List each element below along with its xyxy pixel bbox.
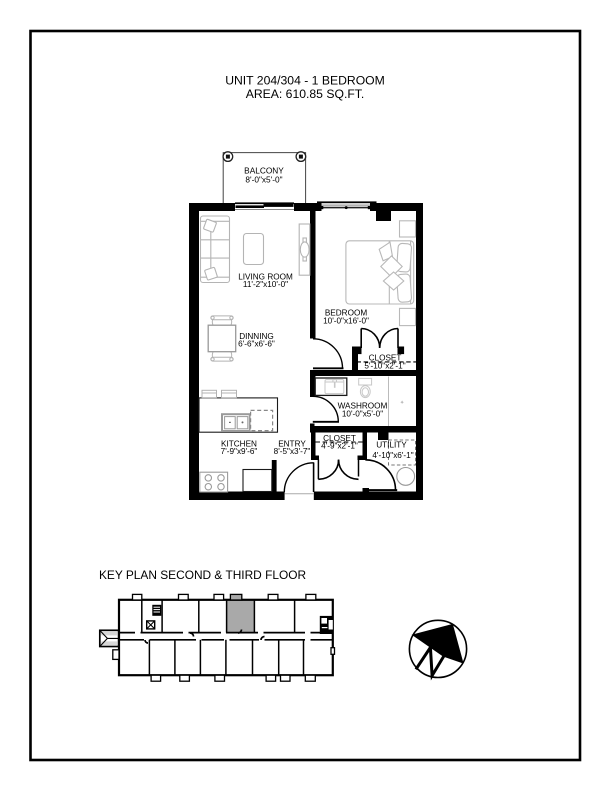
svg-text:KEY PLAN SECOND & THIRD FLOOR: KEY PLAN SECOND & THIRD FLOOR xyxy=(99,568,306,582)
svg-text:8'-5"x3'-7": 8'-5"x3'-7" xyxy=(274,447,311,456)
svg-text:6'-6"x6'-6": 6'-6"x6'-6" xyxy=(238,340,275,349)
svg-text:UNIT 204/304 - 1 BEDROOM: UNIT 204/304 - 1 BEDROOM xyxy=(225,74,385,88)
svg-text:4'-10"x6'-1": 4'-10"x6'-1" xyxy=(372,451,413,460)
svg-text:AREA: 610.85 SQ.FT.: AREA: 610.85 SQ.FT. xyxy=(246,87,365,101)
svg-text:4'-9"x2'-1": 4'-9"x2'-1" xyxy=(321,442,358,451)
svg-text:10'-0"x16'-0": 10'-0"x16'-0" xyxy=(323,317,369,326)
svg-text:UTILITY: UTILITY xyxy=(376,441,407,450)
svg-text:8'-0"x5'-0": 8'-0"x5'-0" xyxy=(245,175,282,185)
svg-text:5'-10"x2'-1": 5'-10"x2'-1" xyxy=(364,362,405,371)
svg-text:7'-9"x9'-6": 7'-9"x9'-6" xyxy=(221,447,258,456)
svg-text:11'-2"x10'-0": 11'-2"x10'-0" xyxy=(243,280,288,289)
svg-text:10'-0"x5'-0": 10'-0"x5'-0" xyxy=(342,410,383,419)
